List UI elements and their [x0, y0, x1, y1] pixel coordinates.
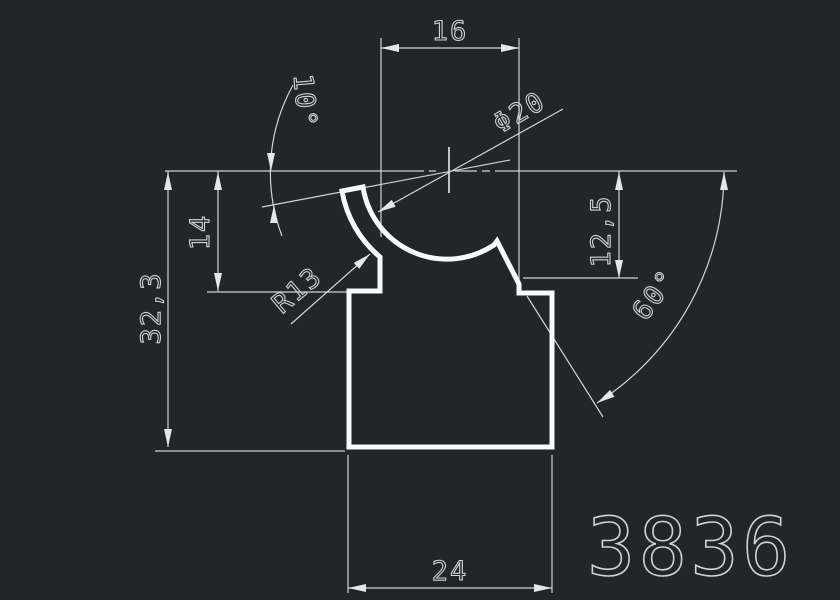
- arrow-14-bottom: [214, 273, 222, 291]
- label-60deg: 60°: [626, 264, 683, 327]
- label-32_3: 32,3: [136, 271, 167, 344]
- label-14: 14: [185, 214, 216, 251]
- label-diameter-20: Φ20: [488, 86, 551, 140]
- arrow-24-left: [348, 584, 366, 592]
- part-number: 3836: [587, 501, 794, 594]
- arrow-60deg-bottom: [597, 390, 614, 403]
- label-24: 24: [432, 556, 469, 587]
- label-12_5: 12,5: [586, 194, 617, 267]
- arrow-16-right: [501, 44, 519, 52]
- arrow-16-left: [381, 44, 399, 52]
- label-radius-13: R13: [267, 261, 329, 320]
- arrow-12_5-top: [615, 172, 623, 190]
- leader-diameter-20: [378, 109, 563, 212]
- label-10deg: 10°: [287, 73, 323, 130]
- arrow-24-right: [534, 584, 552, 592]
- label-16: 16: [432, 16, 469, 47]
- arrow-14-top: [214, 172, 222, 190]
- slant-60-extension: [527, 296, 603, 417]
- tip-angle-10-line: [262, 160, 510, 207]
- profile-outline: [342, 187, 552, 447]
- cad-drawing: 16 24 32,3 14 12,5 Φ20 R13 10° 60° 3836: [0, 0, 840, 600]
- arrow-32_3-top: [164, 172, 172, 190]
- arrow-60deg-top: [720, 172, 728, 190]
- arrow-10deg-lower: [270, 205, 278, 223]
- arrow-10deg-upper: [267, 153, 275, 171]
- cad-drawing-viewport: 16 24 32,3 14 12,5 Φ20 R13 10° 60° 3836: [0, 0, 840, 600]
- arrow-32_3-bottom: [164, 429, 172, 447]
